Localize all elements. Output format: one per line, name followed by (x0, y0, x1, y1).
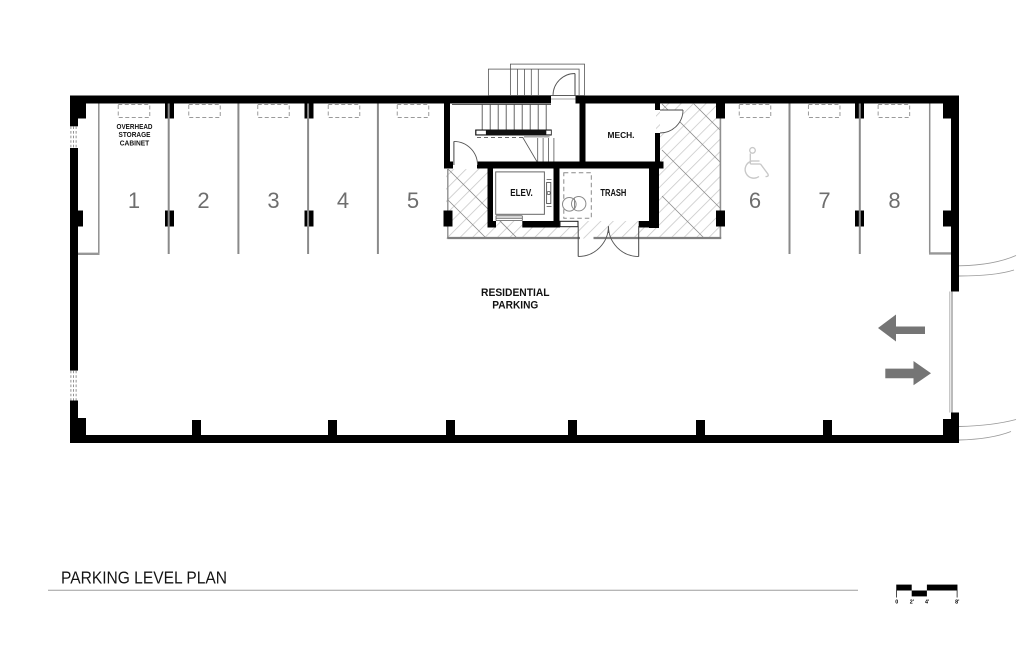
svg-text:TRASH: TRASH (600, 188, 626, 199)
svg-text:ELEV.: ELEV. (510, 188, 533, 199)
svg-text:OVERHEAD: OVERHEAD (117, 124, 153, 131)
svg-text:8': 8' (955, 600, 959, 606)
svg-text:0: 0 (895, 600, 898, 606)
svg-text:CABINET: CABINET (120, 141, 150, 148)
svg-text:4': 4' (925, 600, 929, 606)
svg-text:2: 2 (197, 188, 209, 213)
svg-text:5: 5 (407, 188, 419, 213)
svg-text:RESIDENTIAL: RESIDENTIAL (481, 287, 550, 299)
svg-text:1: 1 (128, 188, 140, 213)
svg-text:2': 2' (910, 600, 914, 606)
svg-text:STORAGE: STORAGE (119, 132, 151, 139)
svg-text:7: 7 (818, 188, 830, 213)
svg-text:8: 8 (888, 188, 900, 213)
svg-text:3: 3 (267, 188, 279, 213)
svg-text:MECH.: MECH. (608, 130, 635, 140)
svg-text:6: 6 (749, 188, 761, 213)
svg-text:4: 4 (337, 188, 349, 213)
svg-text:PARKING LEVEL PLAN: PARKING LEVEL PLAN (61, 568, 227, 588)
svg-text:PARKING: PARKING (492, 300, 538, 312)
